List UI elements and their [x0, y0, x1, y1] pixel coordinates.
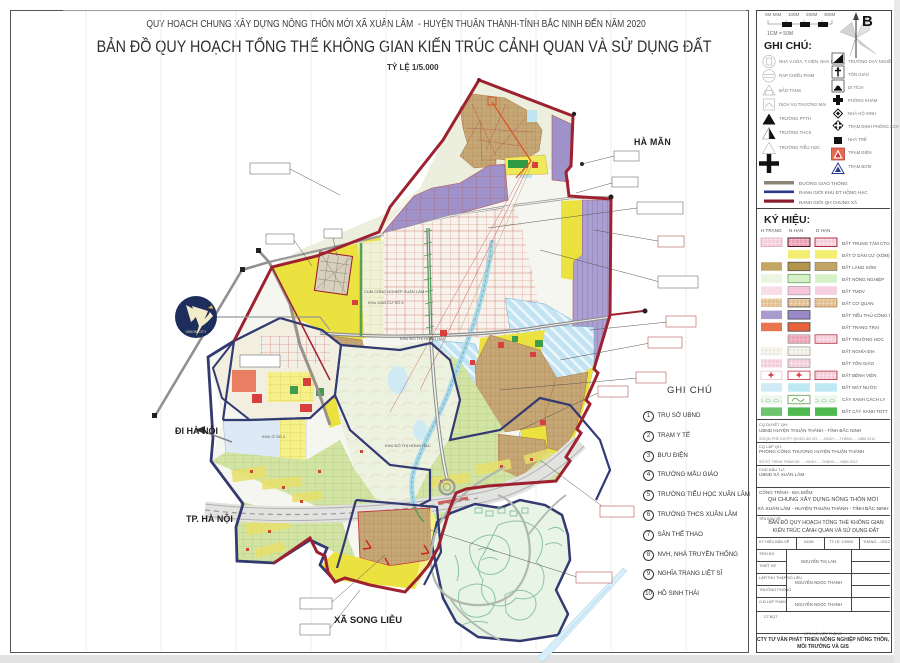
- svg-text:ĐẤT TRANG TRẠI: ĐẤT TRANG TRẠI: [842, 324, 879, 330]
- svg-text:0M 50M: 0M 50M: [765, 12, 782, 17]
- svg-text:100M: 100M: [788, 12, 800, 17]
- svg-text:ĐẤT CÂY XANH TDTT: ĐẤT CÂY XANH TDTT: [842, 408, 888, 414]
- svg-text:B: B: [862, 13, 873, 30]
- svg-text:ĐẤT TÔN GIÁO: ĐẤT TÔN GIÁO: [842, 360, 875, 366]
- svg-text:ĐẤT NÔNG NGHIỆP: ĐẤT NÔNG NGHIỆP: [842, 275, 884, 282]
- svg-text:1CM = 50M: 1CM = 50M: [767, 31, 793, 37]
- svg-text:ĐẤT LÀNG XÓM: ĐẤT LÀNG XÓM: [842, 264, 876, 270]
- svg-text:ĐẤT MẶT NƯỚC: ĐẤT MẶT NƯỚC: [842, 384, 878, 390]
- svg-text:ĐẤT TIỂU THỦ CÔNG NGHIỆP: ĐẤT TIỂU THỦ CÔNG NGHIỆP: [842, 311, 890, 318]
- svg-text:ĐẤT BỆNH VIỆN: ĐẤT BỆNH VIỆN: [842, 371, 876, 378]
- svg-text:CÂY XANH CÁCH LY: CÂY XANH CÁCH LY: [842, 396, 885, 402]
- svg-text:ĐẤT CƠ QUAN: ĐẤT CƠ QUAN: [842, 300, 874, 306]
- svg-text:ĐẤT TRƯỜNG HỌC: ĐẤT TRƯỜNG HỌC: [842, 336, 885, 342]
- svg-text:ĐẤT TRUNG TÂM CTCC: ĐẤT TRUNG TÂM CTCC: [842, 240, 890, 246]
- svg-text:ĐẤT Ở DÂN CƯ (XÓM) Ở: ĐẤT Ở DÂN CƯ (XÓM) Ở: [842, 252, 890, 258]
- svg-text:200M: 200M: [806, 12, 818, 17]
- svg-text:ĐẤT TMDV: ĐẤT TMDV: [842, 288, 865, 294]
- svg-text:ĐẤT NGHĨA ĐỊA: ĐẤT NGHĨA ĐỊA: [842, 348, 875, 354]
- svg-text:VISION CITY: VISION CITY: [186, 330, 207, 334]
